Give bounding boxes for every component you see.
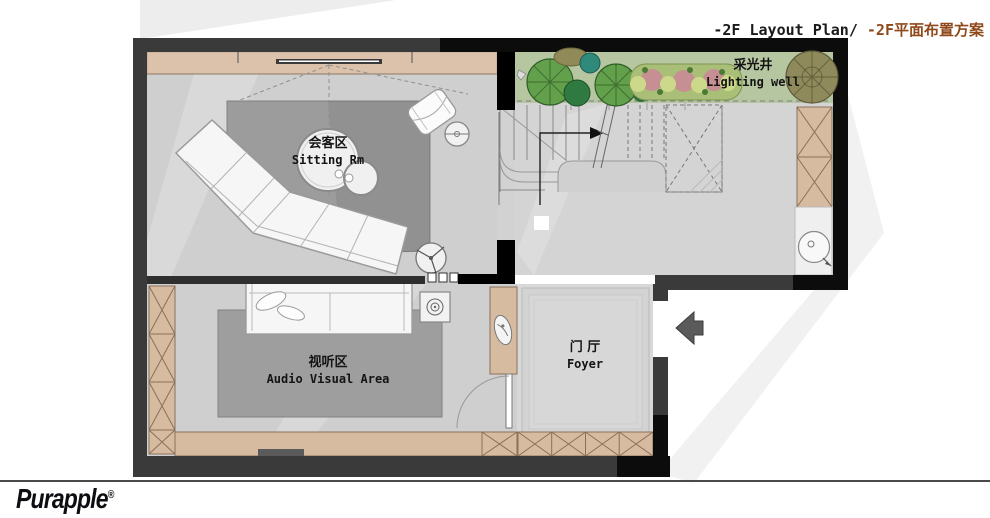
footer-divider [0,480,990,482]
left-wardrobe [149,286,175,454]
label-sitting-en: Sitting Rm [292,153,364,169]
title-zh: -2F平面布置方案 [867,21,984,39]
hall-cabinet [797,107,832,207]
spiral-side-table [420,292,450,322]
niche-fixture [795,207,832,275]
brand-logo: Purapple® [16,483,114,515]
fan-table-icon [416,243,446,273]
registered-mark-icon: ® [108,489,115,501]
label-audio-visual: 视听区 Audio Visual Area [267,355,390,387]
floor-plan-svg [0,0,990,518]
column [534,216,549,230]
label-sitting-room: 会客区 Sitting Rm [292,136,364,168]
label-av-zh: 视听区 [267,355,390,372]
av-bottom-cabinet [175,432,482,456]
tree-icon [564,80,590,106]
label-well-en: Lighting well [706,75,800,91]
label-sitting-zh: 会客区 [292,136,364,153]
av-sofa [246,283,412,334]
label-foyer-zh: 门 厅 [567,340,603,357]
brand-name: Purapple [16,483,108,514]
side-table-icon [445,122,469,146]
label-lighting-well: 采光井 Lighting well [706,58,800,90]
page-title: -2F Layout Plan/ -2F平面布置方案 [713,19,984,40]
label-foyer-en: Foyer [567,357,603,373]
label-av-en: Audio Visual Area [267,372,390,388]
label-well-zh: 采光井 [706,58,800,75]
label-foyer: 门 厅 Foyer [567,340,603,372]
entry-arrow-icon [676,312,703,344]
title-en: -2F Layout Plan/ [713,21,867,39]
floor-plan-page: -2F Layout Plan/ -2F平面布置方案 会客区 Sitting R… [0,0,990,518]
foyer-bottom-cabinet [518,432,653,456]
